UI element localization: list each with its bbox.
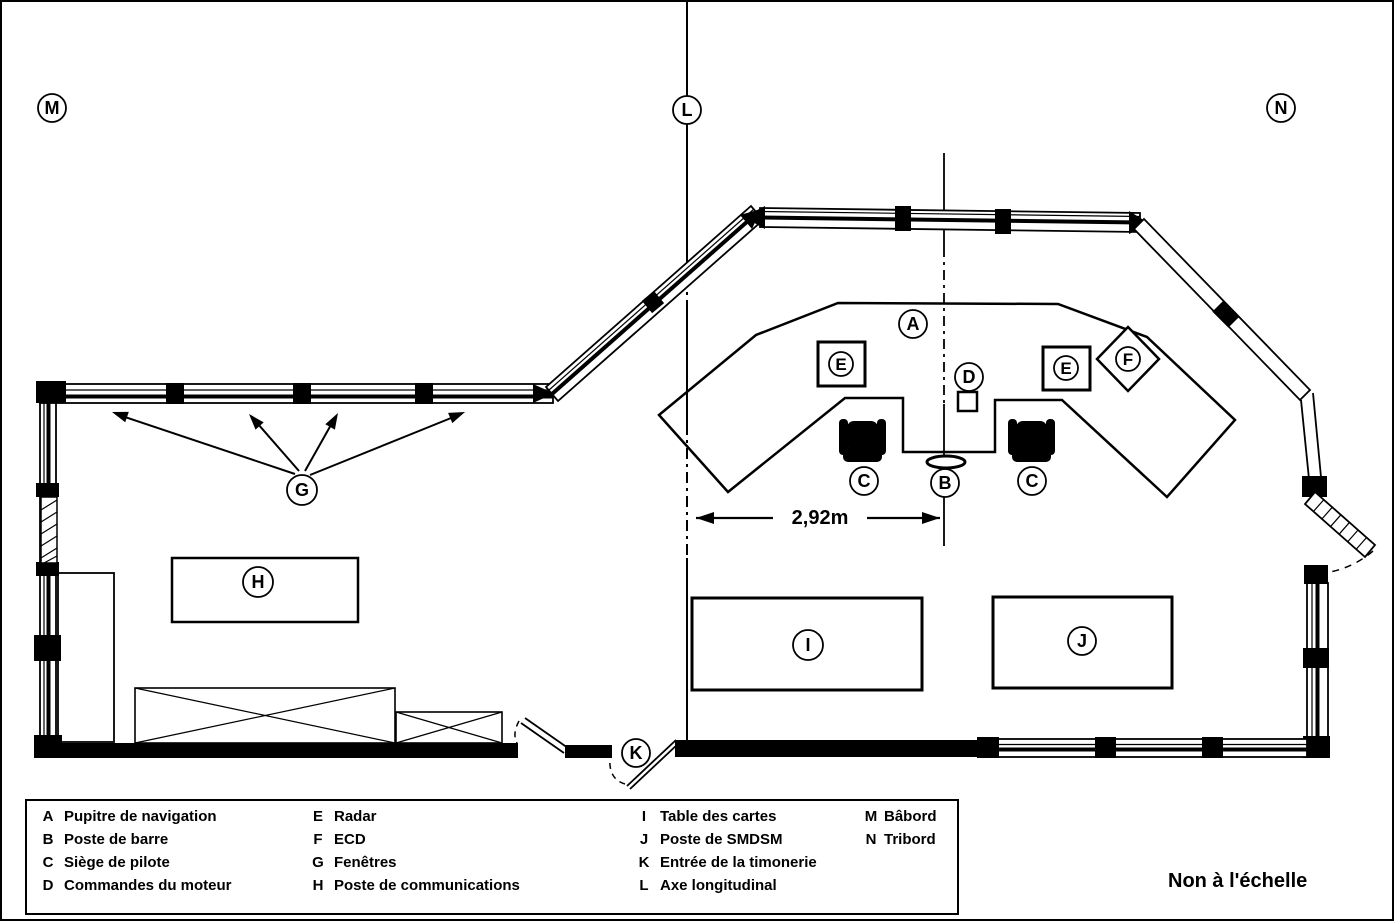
wall-mullion <box>647 297 659 307</box>
wall-starboard-side-windows <box>1303 565 1330 758</box>
wall-mullion <box>995 209 1011 234</box>
svg-text:C: C <box>858 471 871 491</box>
wall-mullion <box>34 635 61 661</box>
wall-aft-starboard-windows <box>977 737 1307 758</box>
pilot-chair-right <box>1008 419 1055 462</box>
marker-N: N <box>1267 94 1295 122</box>
svg-text:N: N <box>1275 98 1288 118</box>
floor-plan-drawing: 2,92m M L N A E D E F C B C G H I J K <box>0 0 1394 921</box>
chair-base <box>843 448 882 462</box>
wall-forward-port-windows <box>36 381 554 404</box>
marker-L: L <box>673 96 701 124</box>
svg-text:G: G <box>295 480 309 500</box>
wall-mullion <box>36 483 59 497</box>
wall-mullion <box>1095 737 1116 758</box>
marker-F: F <box>1116 347 1140 371</box>
svg-text:F: F <box>1123 350 1133 369</box>
marker-H: H <box>243 567 273 597</box>
port-door-leaf-hatched <box>41 497 57 563</box>
wall-mullion <box>166 383 184 404</box>
marker-D: D <box>955 363 983 391</box>
marker-E-right: E <box>1054 356 1078 380</box>
wheelhouse-plan-figure: 2,92m M L N A E D E F C B C G H I J K AP… <box>0 0 1394 921</box>
chair-seat <box>847 421 878 451</box>
wall-aft-center-solid <box>675 740 981 757</box>
wall-mullion <box>1304 565 1328 584</box>
svg-text:H: H <box>252 572 265 592</box>
svg-text:L: L <box>682 100 693 120</box>
svg-text:M: M <box>45 98 60 118</box>
svg-text:E: E <box>835 355 846 374</box>
marker-A: A <box>899 310 927 338</box>
wall-aft-port-solid <box>38 743 518 758</box>
svg-text:A: A <box>907 314 920 334</box>
marker-I: I <box>793 630 823 660</box>
wall-mullion <box>36 562 59 576</box>
marker-M: M <box>38 94 66 122</box>
marker-B: B <box>931 469 959 497</box>
marker-J: J <box>1068 627 1096 655</box>
figure-border <box>1 1 1393 920</box>
svg-text:B: B <box>939 473 952 493</box>
door-threshold <box>565 745 612 758</box>
wall-mullion <box>895 206 911 231</box>
marker-K: K <box>622 739 650 767</box>
wall-mullion <box>1218 306 1234 322</box>
marker-C-left: C <box>850 467 878 495</box>
pilot-chair-left <box>839 419 886 462</box>
wall-mullion <box>293 383 311 404</box>
wall-mullion <box>1303 648 1329 668</box>
svg-text:J: J <box>1077 631 1087 651</box>
wall-mullion <box>415 383 433 404</box>
marker-G: G <box>287 475 317 505</box>
svg-text:C: C <box>1026 471 1039 491</box>
wall-mullion <box>1202 737 1223 758</box>
marker-C-right: C <box>1018 467 1046 495</box>
svg-text:D: D <box>963 367 976 387</box>
chair-seat <box>1016 421 1047 451</box>
helm-wheel <box>927 456 965 468</box>
svg-text:E: E <box>1060 359 1071 378</box>
wall-corner-block <box>36 381 66 403</box>
engine-controls-box <box>958 392 977 411</box>
chair-base <box>1012 448 1051 462</box>
svg-text:K: K <box>630 743 643 763</box>
dimension-label: 2,92m <box>792 507 849 529</box>
marker-E-left: E <box>829 352 853 376</box>
svg-text:I: I <box>805 635 810 655</box>
